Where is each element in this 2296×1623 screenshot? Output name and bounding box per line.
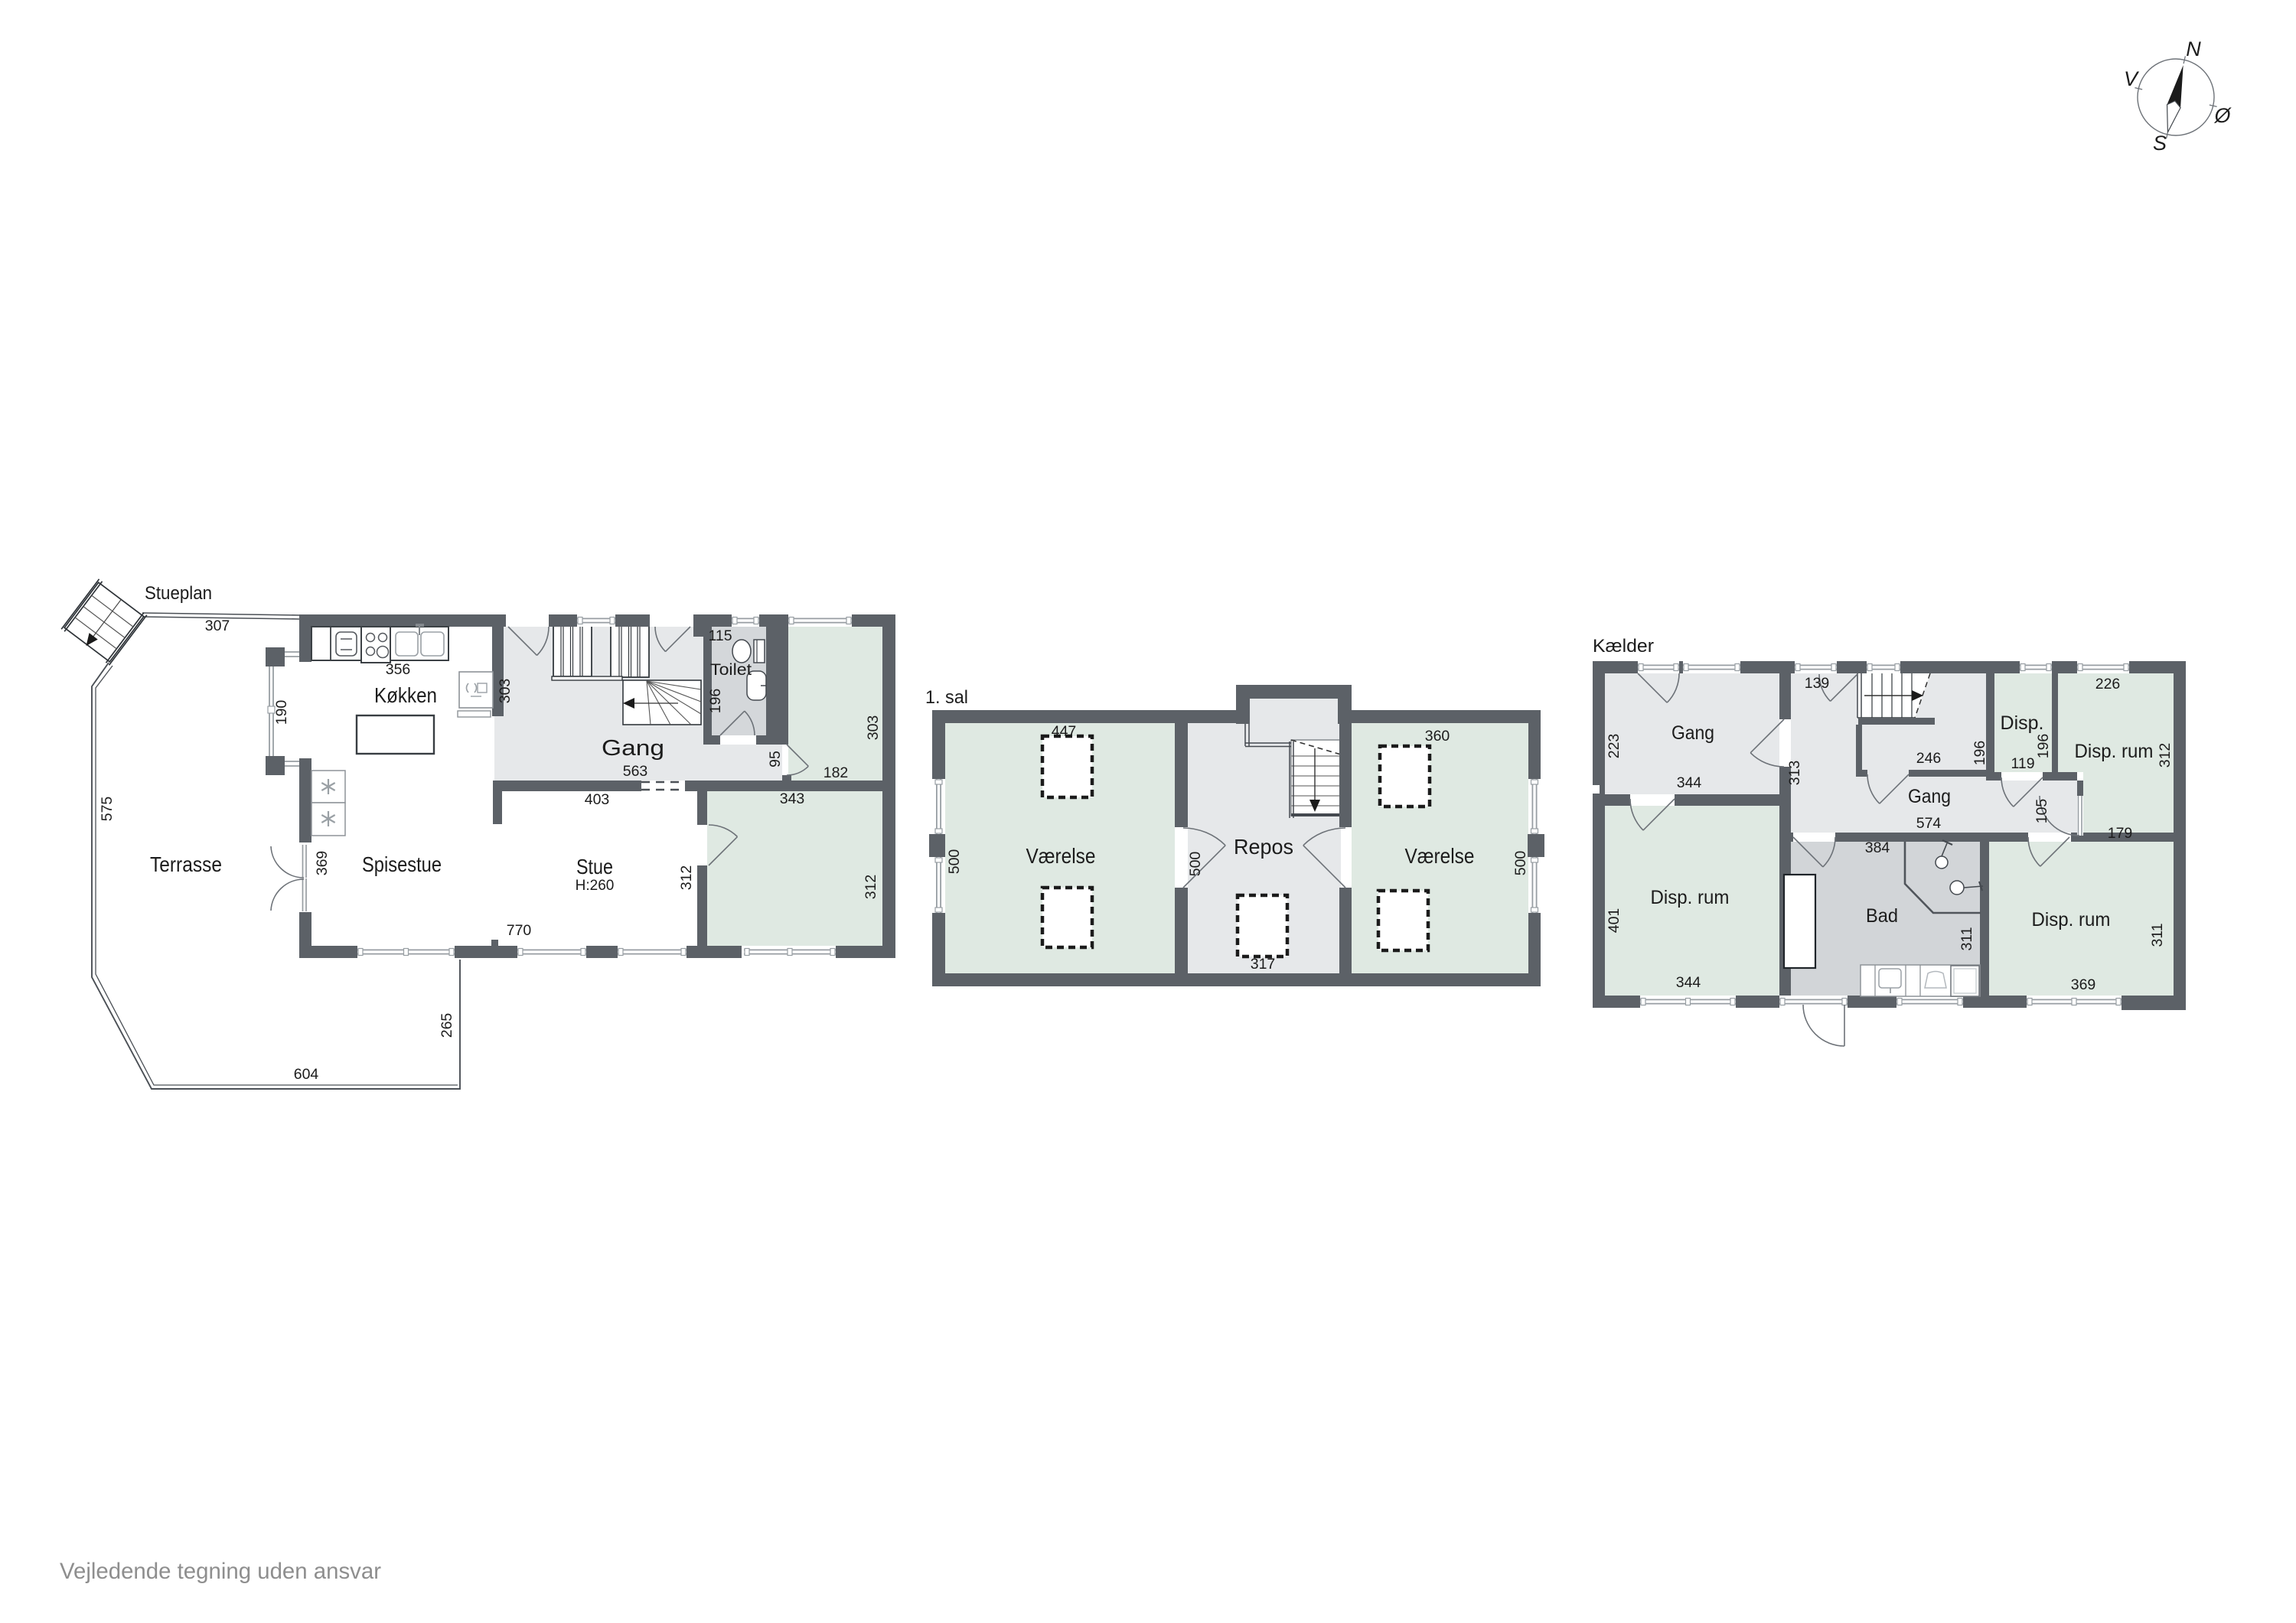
svg-text:303: 303 <box>497 679 514 704</box>
svg-text:317: 317 <box>1251 956 1276 973</box>
svg-text:604: 604 <box>294 1066 319 1083</box>
svg-text:343: 343 <box>780 790 805 807</box>
svg-text:384: 384 <box>1865 839 1890 856</box>
svg-text:139: 139 <box>1805 675 1830 692</box>
svg-text:447: 447 <box>1052 723 1077 740</box>
svg-text:574: 574 <box>1916 815 1942 832</box>
svg-text:356: 356 <box>386 661 411 678</box>
svg-text:196: 196 <box>2035 734 2052 759</box>
svg-text:115: 115 <box>708 627 732 644</box>
svg-text:1. sal: 1. sal <box>925 687 968 708</box>
svg-text:500: 500 <box>946 849 963 875</box>
svg-text:95: 95 <box>767 751 784 768</box>
svg-text:313: 313 <box>1786 761 1803 786</box>
svg-text:311: 311 <box>2149 923 2166 947</box>
svg-text:360: 360 <box>1425 728 1450 745</box>
svg-text:Bad: Bad <box>1866 905 1898 927</box>
svg-text:H:260: H:260 <box>576 878 615 894</box>
svg-text:265: 265 <box>439 1013 455 1038</box>
svg-text:Repos: Repos <box>1234 835 1293 859</box>
svg-text:Køkken: Køkken <box>374 683 437 707</box>
svg-text:Gang: Gang <box>1908 786 1951 807</box>
svg-text:344: 344 <box>1677 774 1702 791</box>
svg-text:S: S <box>2153 132 2167 155</box>
svg-text:575: 575 <box>99 797 116 822</box>
svg-text:303: 303 <box>865 715 882 741</box>
svg-text:Stue: Stue <box>576 855 613 878</box>
svg-text:246: 246 <box>1916 750 1942 767</box>
svg-text:369: 369 <box>314 851 331 876</box>
svg-text:Stueplan: Stueplan <box>145 583 212 604</box>
svg-text:307: 307 <box>205 618 230 634</box>
svg-text:223: 223 <box>1606 734 1623 759</box>
svg-text:311: 311 <box>1958 927 1975 950</box>
svg-text:Værelse: Værelse <box>1405 844 1475 868</box>
svg-text:401: 401 <box>1606 908 1623 934</box>
svg-text:312: 312 <box>2157 743 2174 768</box>
svg-text:Disp. rum: Disp. rum <box>2032 909 2111 930</box>
svg-text:Toilet: Toilet <box>710 661 752 679</box>
svg-text:312: 312 <box>678 865 695 891</box>
svg-text:179: 179 <box>2108 825 2133 842</box>
svg-text:500: 500 <box>1187 852 1204 877</box>
svg-text:Ø: Ø <box>2213 104 2232 127</box>
svg-text:182: 182 <box>823 764 849 781</box>
svg-text:Spisestue: Spisestue <box>362 852 442 876</box>
svg-text:Gang: Gang <box>602 736 664 761</box>
svg-text:119: 119 <box>2011 755 2034 772</box>
svg-text:Kælder: Kælder <box>1593 636 1654 657</box>
svg-text:V: V <box>2124 67 2140 90</box>
svg-text:500: 500 <box>1512 851 1529 876</box>
svg-text:Disp. rum: Disp. rum <box>1651 887 1730 908</box>
svg-text:226: 226 <box>2095 676 2121 693</box>
svg-text:403: 403 <box>585 791 610 808</box>
svg-text:196: 196 <box>1971 741 1988 766</box>
svg-text:770: 770 <box>507 922 532 939</box>
svg-text:Værelse: Værelse <box>1026 844 1096 868</box>
svg-text:N: N <box>2186 37 2201 60</box>
svg-text:369: 369 <box>2071 976 2096 993</box>
svg-text:Disp.: Disp. <box>2001 712 2044 734</box>
svg-text:Gang: Gang <box>1671 722 1714 744</box>
svg-text:312: 312 <box>863 875 879 900</box>
svg-text:Disp. rum: Disp. rum <box>2075 741 2154 762</box>
svg-text:Vejledende tegning uden ansvar: Vejledende tegning uden ansvar <box>60 1559 381 1584</box>
svg-text:105: 105 <box>2033 799 2050 824</box>
svg-text:190: 190 <box>273 700 290 725</box>
svg-text:Terrasse: Terrasse <box>150 852 222 876</box>
svg-text:563: 563 <box>623 763 648 780</box>
svg-text:196: 196 <box>707 689 724 714</box>
svg-text:344: 344 <box>1676 974 1701 991</box>
